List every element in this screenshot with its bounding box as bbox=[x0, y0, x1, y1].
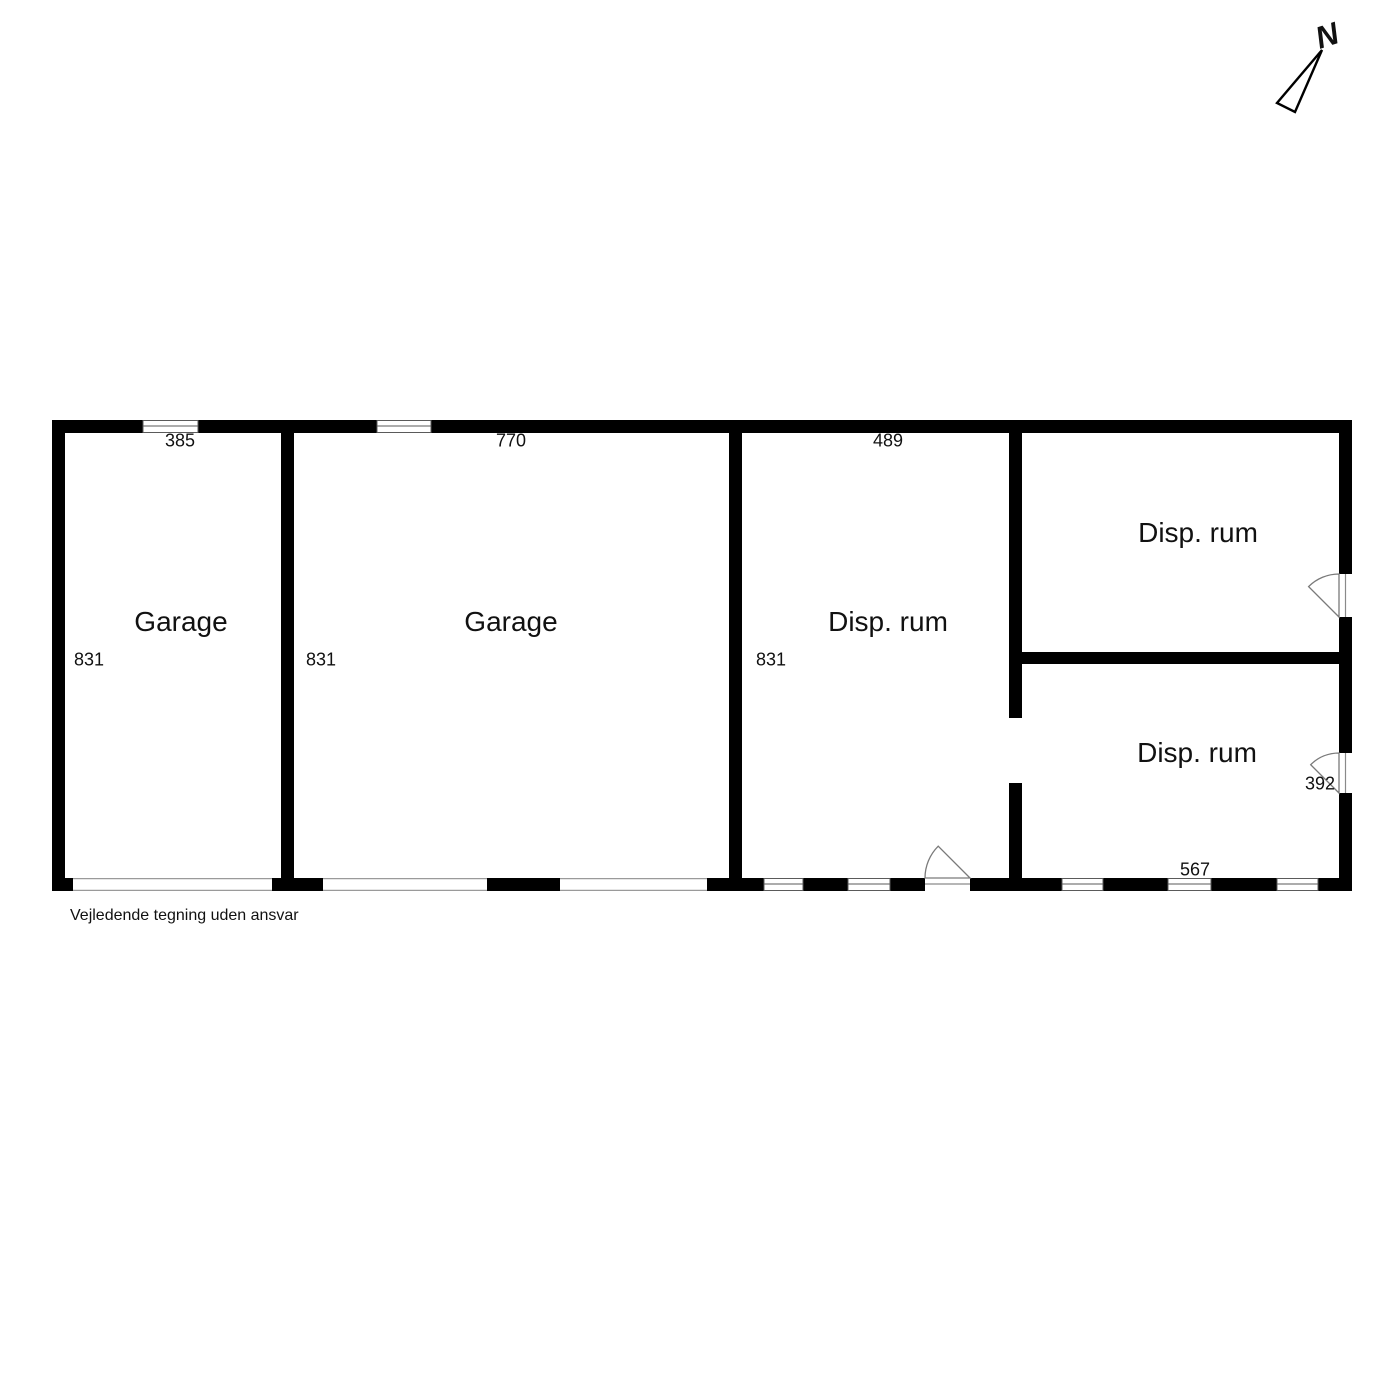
dimension-garage2-depth: 831 bbox=[306, 650, 336, 671]
room-label-disprum2: Disp. rum bbox=[1138, 517, 1258, 549]
door-disprum-bottom bbox=[925, 846, 970, 891]
garage-door-opening-1 bbox=[73, 878, 272, 891]
window-disprum-bottom-1 bbox=[764, 879, 803, 891]
interior-wall-disprum-right-upper bbox=[1009, 433, 1022, 718]
floor-plan-canvas: N 385 770 489 831 831 831 392 567 Garage… bbox=[0, 0, 1400, 1400]
north-arrow-icon bbox=[1277, 50, 1322, 112]
outer-wall-top bbox=[52, 420, 1352, 433]
dimension-disprum1-depth: 831 bbox=[756, 650, 786, 671]
window-disprum3-bottom-3 bbox=[1277, 879, 1318, 891]
room-label-disprum1: Disp. rum bbox=[828, 606, 948, 638]
interior-wall-disprum-right-lower bbox=[1009, 783, 1022, 878]
dimension-disprum3-width: 567 bbox=[1180, 860, 1210, 881]
floor-plan-drawing bbox=[0, 0, 1400, 1400]
outer-wall-right bbox=[1339, 420, 1352, 891]
window-garage2-top bbox=[377, 421, 431, 433]
window-disprum3-bottom-1 bbox=[1062, 879, 1103, 891]
window-disprum-bottom-2 bbox=[848, 879, 890, 891]
room-label-garage2: Garage bbox=[464, 606, 557, 638]
disclaimer-text: Vejledende tegning uden ansvar bbox=[70, 907, 299, 925]
outer-wall-left bbox=[52, 420, 65, 891]
garage-door-opening-2 bbox=[323, 878, 487, 891]
room-label-garage1: Garage bbox=[134, 606, 227, 638]
door-disprum2-right bbox=[1309, 574, 1352, 617]
garage-door-opening-3 bbox=[560, 878, 707, 891]
interior-wall-garage1-garage2 bbox=[281, 433, 294, 878]
interior-wall-right-rooms-divider bbox=[1009, 652, 1339, 664]
room-label-disprum3: Disp. rum bbox=[1137, 737, 1257, 769]
dimension-disprum1-width: 489 bbox=[873, 431, 903, 452]
dimension-disprum3-door: 392 bbox=[1305, 774, 1335, 795]
dimension-garage1-width: 385 bbox=[165, 431, 195, 452]
interior-wall-garage2-disprum bbox=[729, 433, 742, 878]
dimension-garage1-depth: 831 bbox=[74, 650, 104, 671]
dimension-garage2-width: 770 bbox=[496, 431, 526, 452]
